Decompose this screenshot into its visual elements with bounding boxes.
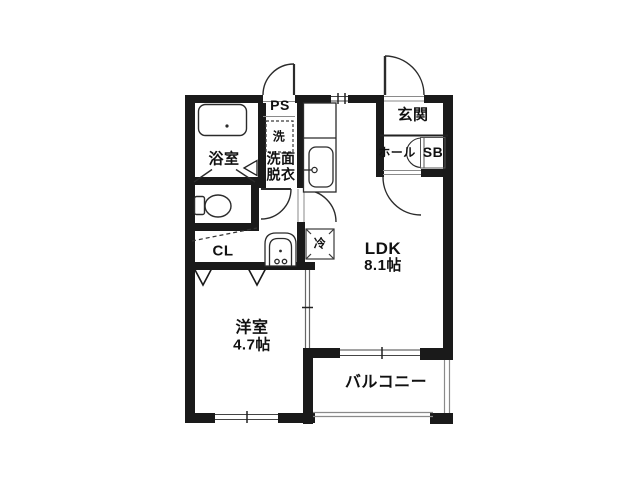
label-washroom: 洗面 脱衣 [267, 151, 296, 182]
label-western-room-size: 4.7帖 [233, 338, 271, 355]
closet-bifold-marks [194, 268, 266, 285]
label-western-room: 洋室 4.7帖 [233, 320, 271, 355]
wall-top-2 [295, 95, 331, 103]
ldk-bottom-wall-1 [303, 348, 340, 358]
label-refrigerator: 冷 [314, 237, 327, 250]
bath-strip-wall [258, 103, 266, 188]
label-hall: ホール [378, 146, 416, 159]
entrance-left-wall [376, 103, 384, 177]
washroom-door [261, 189, 291, 219]
toilet-right-wall [251, 185, 259, 231]
label-washer: 洗 [273, 130, 286, 143]
ldk-bottom-wall-2 [420, 348, 453, 360]
balcony-corner-stub [430, 413, 453, 424]
bath-folding-door-icon [244, 161, 257, 176]
label-entrance: 玄関 [397, 108, 428, 125]
western-room-window [215, 411, 278, 423]
hall-bottom-wall-2 [421, 169, 453, 177]
label-western-room-name: 洋室 [233, 320, 271, 338]
label-ldk-name: LDK [364, 239, 402, 258]
label-balcony: バルコニー [345, 374, 427, 392]
label-shoe-box: SB [423, 145, 443, 161]
label-ldk: LDK 8.1帖 [364, 239, 402, 275]
wall-left [185, 95, 195, 423]
label-pipe-space: PS [270, 98, 290, 114]
room-partition [302, 270, 313, 348]
label-washroom-line2: 脱衣 [267, 167, 296, 183]
label-bathroom: 浴室 [208, 152, 239, 169]
wall-bottom-west-1 [185, 413, 215, 423]
ps-door [263, 64, 294, 95]
label-ldk-size: 8.1帖 [364, 258, 402, 275]
label-washroom-line1: 洗面 [267, 151, 296, 167]
entrance-door [385, 56, 424, 95]
bathtub-icon [194, 105, 255, 183]
washbasin-icon [265, 233, 296, 266]
balcony-window [340, 347, 420, 359]
wall-top-3 [348, 95, 384, 103]
hall-bottom-wall-1 [376, 169, 384, 177]
washroom-right-wall-lower [297, 222, 305, 262]
balcony-left-wall [303, 348, 313, 424]
kitchen-sink-icon [304, 103, 337, 192]
ldk-side-door [304, 190, 336, 222]
wall-top-1 [185, 95, 263, 103]
label-closet: CL [213, 244, 234, 261]
hall-ldk-door [383, 177, 421, 215]
toilet-icon [195, 195, 232, 217]
floorplan-canvas: 浴室 洗面 脱衣 PS 洗 玄関 ホール SB CL 冷 LDK 8.1帖 洋室… [0, 0, 640, 480]
